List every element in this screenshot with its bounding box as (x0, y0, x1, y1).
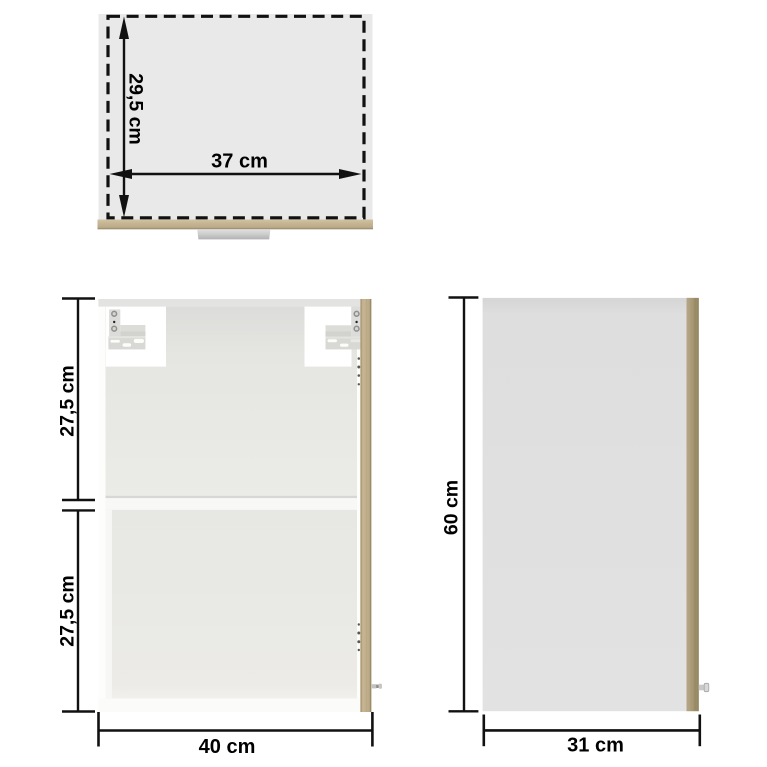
svg-text:31 cm: 31 cm (567, 735, 624, 757)
svg-text:29,5 cm: 29,5 cm (125, 73, 147, 145)
svg-text:37 cm: 37 cm (211, 150, 268, 172)
svg-text:27,5 cm: 27,5 cm (57, 365, 79, 437)
svg-text:40 cm: 40 cm (199, 736, 256, 758)
svg-text:27,5 cm: 27,5 cm (57, 575, 79, 647)
svg-text:60 cm: 60 cm (441, 480, 463, 535)
